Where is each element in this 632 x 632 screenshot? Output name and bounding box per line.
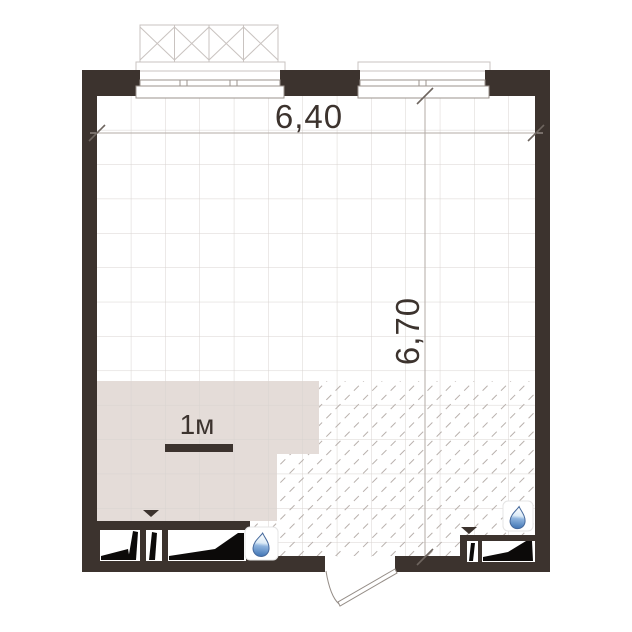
door-leaf	[338, 569, 397, 606]
scale-label: 1м	[180, 409, 215, 440]
dimension-height-label: 6,70	[389, 297, 426, 365]
wall-right	[535, 70, 550, 572]
wet-point-left	[245, 527, 278, 560]
exterior-sills	[136, 62, 490, 71]
wall-top-middle	[280, 70, 360, 96]
vent-shafts-right	[467, 541, 535, 562]
wall-left	[82, 70, 97, 572]
balcony-basket	[140, 25, 278, 62]
window-right	[358, 80, 489, 98]
dimension-width-label: 6,40	[275, 98, 343, 135]
floor-plan-canvas: 6,40 6,70 1м	[0, 0, 632, 632]
window-left	[136, 80, 284, 98]
floor-plan: 6,40 6,70 1м	[0, 0, 632, 632]
wet-point-right	[503, 501, 533, 531]
door-swing-arc	[326, 571, 339, 604]
entry-door	[326, 569, 397, 606]
vent-shafts-left	[100, 530, 246, 561]
